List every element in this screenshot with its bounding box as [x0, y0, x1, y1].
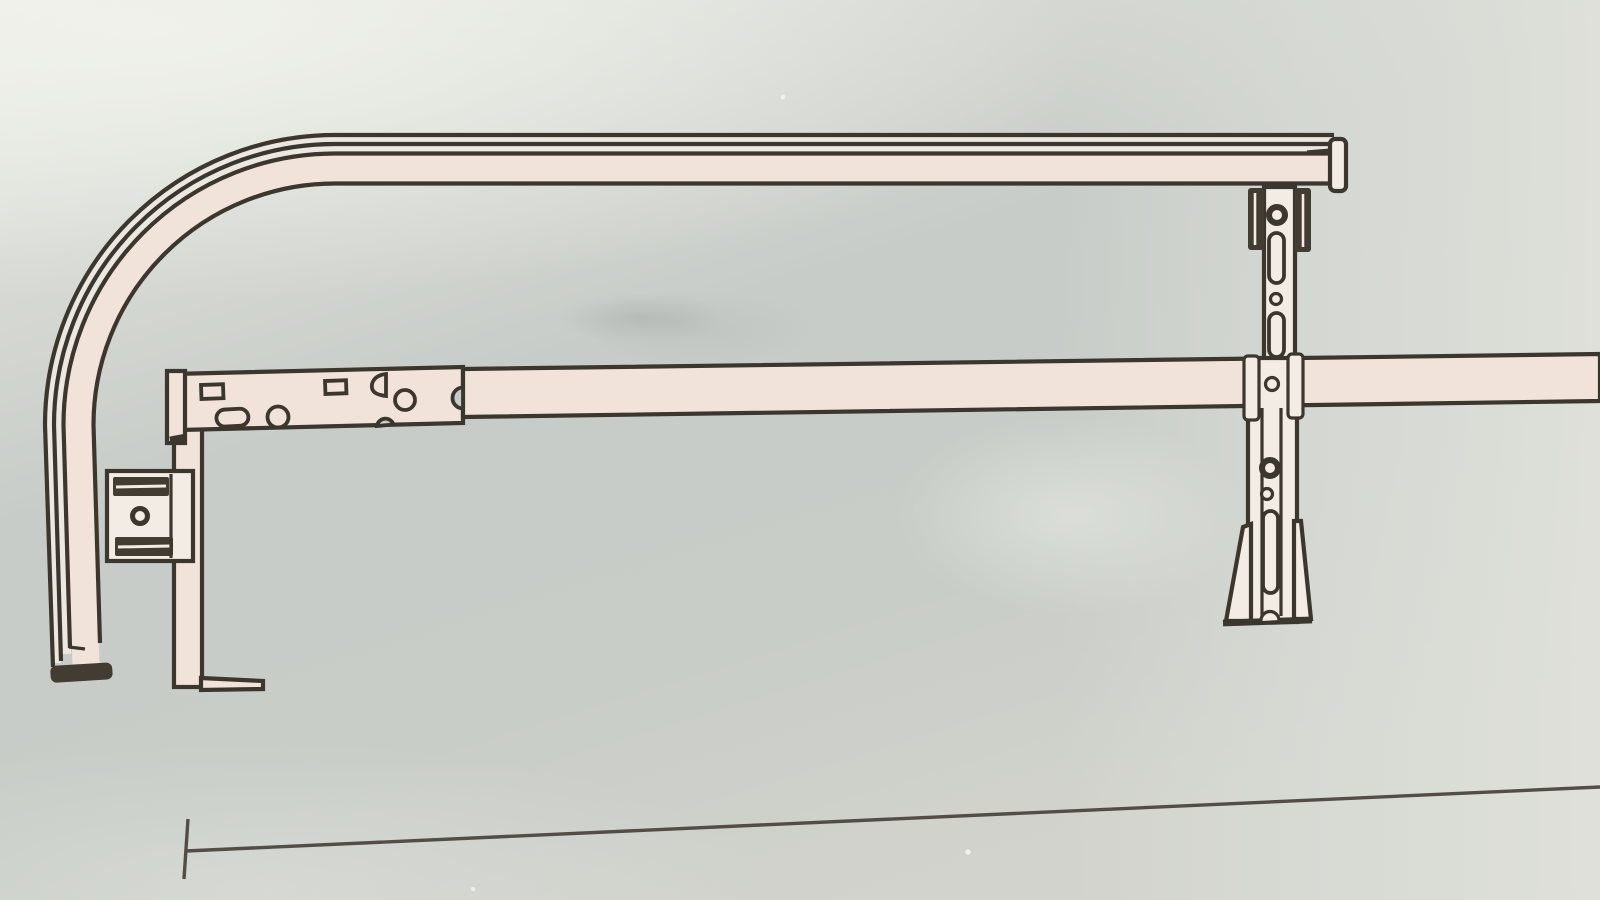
strut-pivot-hole-lower — [1262, 460, 1278, 476]
clamp-jaw-bottom-highlight — [118, 546, 170, 547]
strut-bar-hole — [1266, 378, 1279, 391]
strut-pivot-hole-top — [1269, 207, 1285, 223]
clamp-jaw-top-highlight — [116, 486, 166, 487]
clamp-screw-hole — [133, 509, 148, 524]
paper-speck-3 — [471, 887, 475, 891]
strut-sleeve-right — [1288, 354, 1303, 418]
rail-groove-joint-tick — [69, 647, 85, 649]
photo-of-diagram — [0, 0, 1600, 900]
strip-post-joint — [170, 437, 186, 440]
paper-shadow-smudge — [555, 293, 725, 343]
diagram-canvas — [0, 0, 1600, 900]
plate-hook-strip — [167, 371, 185, 443]
track-clamp-bracket — [107, 471, 193, 561]
strut-small-hole-1 — [1271, 294, 1282, 305]
strut-foot-notch — [1261, 612, 1279, 621]
plate-bottom-notch — [377, 419, 394, 426]
strut-sleeve-left — [1244, 356, 1259, 420]
paper-speck-1 — [781, 95, 786, 100]
paper-speck-2 — [965, 849, 970, 854]
strut-small-hole-2 — [1262, 489, 1273, 500]
rail-end-inner-line — [1307, 150, 1331, 152]
rail-right-end-cap — [1330, 139, 1346, 191]
paper-sheen — [895, 415, 1245, 615]
crossbar-end-notch — [453, 388, 464, 409]
left-leg-foot — [201, 678, 263, 690]
